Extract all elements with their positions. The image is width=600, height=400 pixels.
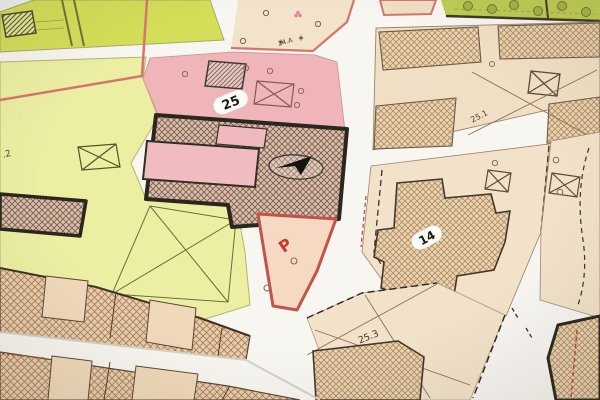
cadastral-map-photo: 24.A .2 25 <box>0 0 600 400</box>
map-canvas: 24.A .2 25 <box>0 0 600 400</box>
photo-vignette <box>0 0 600 400</box>
